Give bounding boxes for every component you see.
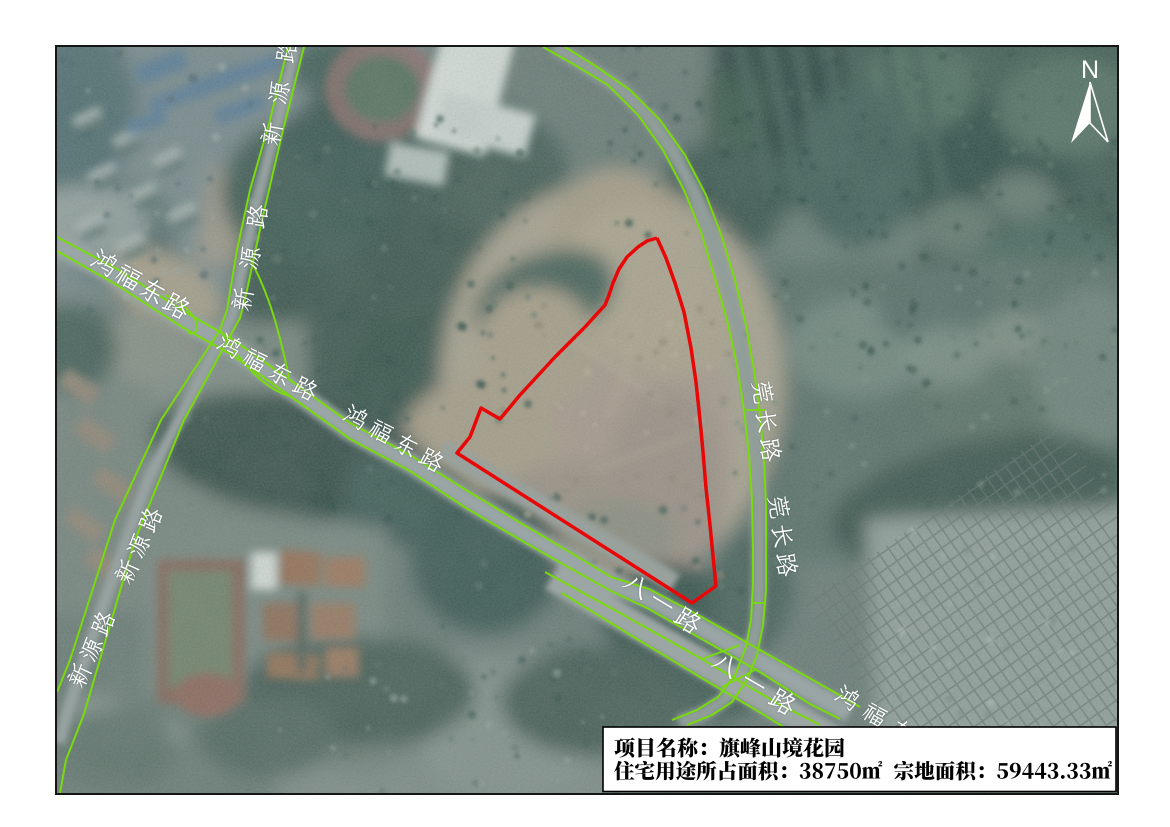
svg-text:N: N bbox=[1081, 56, 1099, 84]
